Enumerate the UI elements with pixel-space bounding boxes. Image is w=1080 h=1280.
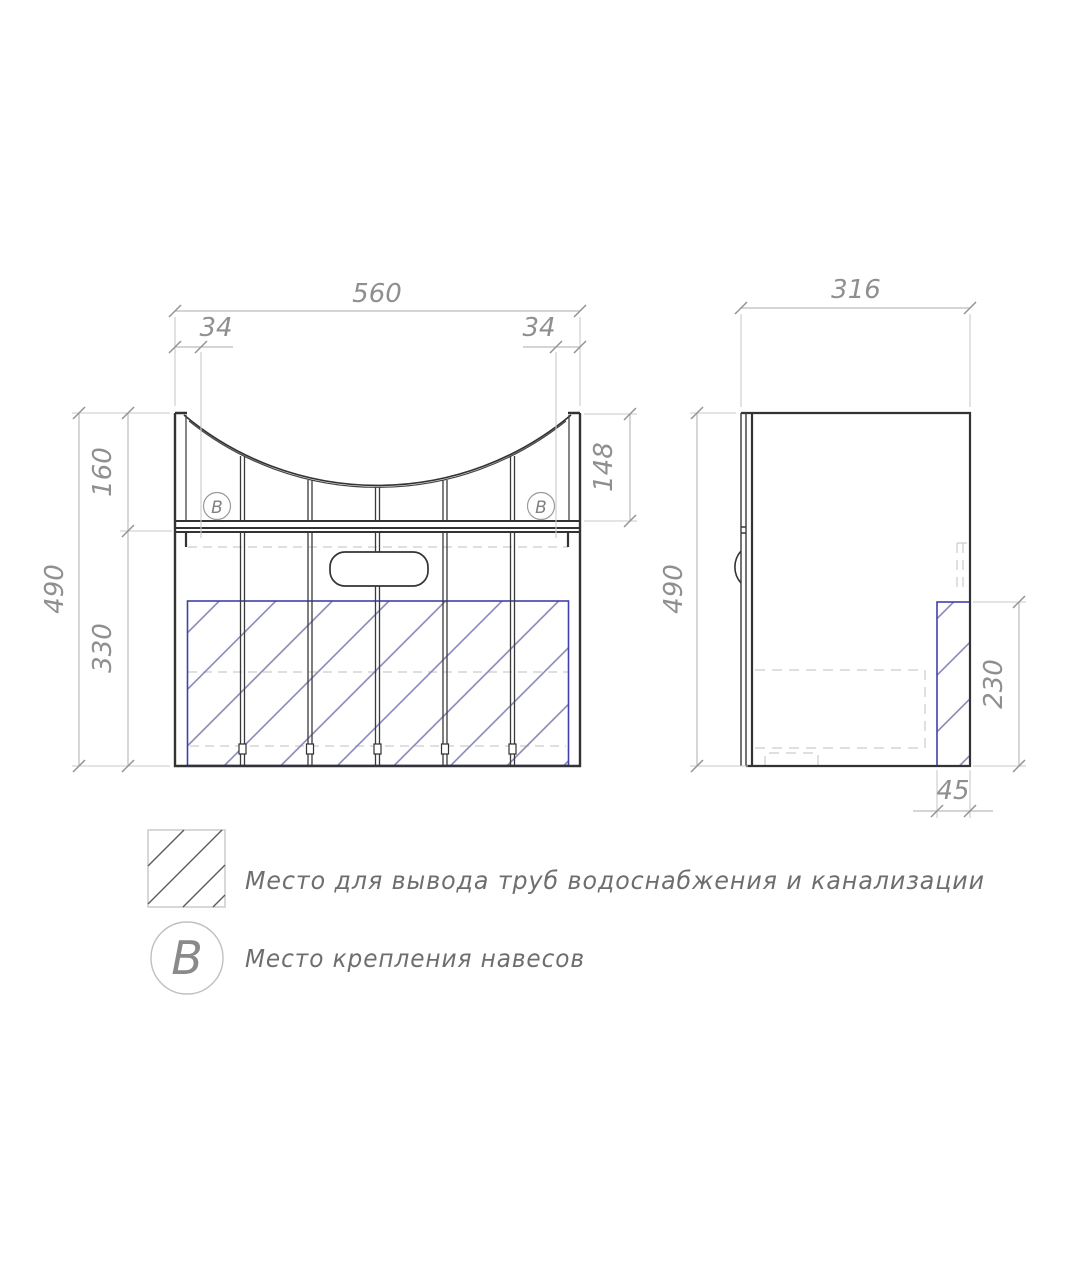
mount-marker-left: В <box>204 493 231 520</box>
technical-drawing-page: В В 560 34 34 148 490 160 330 <box>0 0 1080 1280</box>
front-upper-side-panels <box>186 415 569 521</box>
front-handle-slot <box>330 552 428 586</box>
dim-front-height-total: 490 <box>40 564 70 614</box>
mount-marker-right: В <box>528 493 555 520</box>
side-outline <box>741 413 970 766</box>
side-handle-bump <box>735 551 741 583</box>
dim-front-offset-right: 34 <box>522 313 555 343</box>
dim-front-offset-left: 34 <box>199 313 232 343</box>
side-front-strips <box>741 413 746 766</box>
front-basin-curve-outer <box>184 415 571 485</box>
legend-mount-symbol: В <box>151 922 223 994</box>
mount-marker-right-letter: В <box>535 498 547 518</box>
front-upper-dividers <box>241 456 515 521</box>
front-view: В В <box>175 413 580 766</box>
legend-mount-letter: В <box>171 931 203 985</box>
legend-mount-text: Место крепления навесов <box>245 944 585 973</box>
legend-pipe-symbol <box>148 830 225 907</box>
side-view <box>735 413 970 766</box>
dim-front-height-upper: 160 <box>88 447 118 497</box>
dim-side-depth: 316 <box>831 275 881 305</box>
dim-front-width: 560 <box>352 279 402 309</box>
dim-side-pipe-width: 45 <box>936 776 969 806</box>
legend: Место для вывода труб водоснабжения и ка… <box>148 830 985 994</box>
dim-front-height-lower: 330 <box>88 623 118 673</box>
front-rail <box>175 521 580 532</box>
cabinet-drawing: В В 560 34 34 148 490 160 330 <box>0 0 1080 1280</box>
dim-side-height-total: 490 <box>659 564 689 614</box>
side-pipe-zone <box>937 602 970 766</box>
mount-marker-left-letter: В <box>211 498 223 518</box>
dim-side-pipe-height: 230 <box>979 659 1009 709</box>
legend-pipe-text: Место для вывода труб водоснабжения и ка… <box>245 866 985 895</box>
dim-front-basin-height: 148 <box>589 442 619 492</box>
